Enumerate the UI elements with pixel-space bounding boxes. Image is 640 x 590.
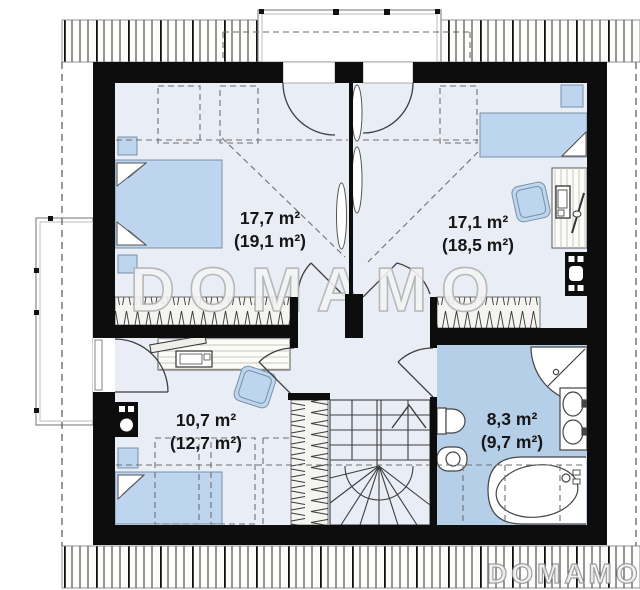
room-area-gross: (12,7 m²) <box>131 432 281 455</box>
room-area-net: 17,1 m² <box>403 211 553 234</box>
room-label-bathroom: 8,3 m² (9,7 m²) <box>437 408 587 454</box>
room-label-room-3: 10,7 m² (12,7 m²) <box>131 409 281 455</box>
room-label-bedroom-1: 17,7 m² (19,1 m²) <box>195 207 345 253</box>
room-area-gross: (18,5 m²) <box>403 234 553 257</box>
room-area-net: 8,3 m² <box>437 408 587 431</box>
room-area-net: 10,7 m² <box>131 409 281 432</box>
watermark-bottom-right: DOMAMO <box>487 558 640 590</box>
room-label-bedroom-2: 17,1 m² (18,5 m²) <box>403 211 553 257</box>
room-area-gross: (19,1 m²) <box>195 230 345 253</box>
plan-walls <box>0 0 640 590</box>
room-area-gross: (9,7 m²) <box>437 431 587 454</box>
floor-plan: DOMAMO <box>0 0 640 590</box>
chimney-bedroom-2 <box>565 252 587 296</box>
partition-wall <box>349 83 353 297</box>
walls <box>93 62 607 545</box>
room-area-net: 17,7 m² <box>195 207 345 230</box>
